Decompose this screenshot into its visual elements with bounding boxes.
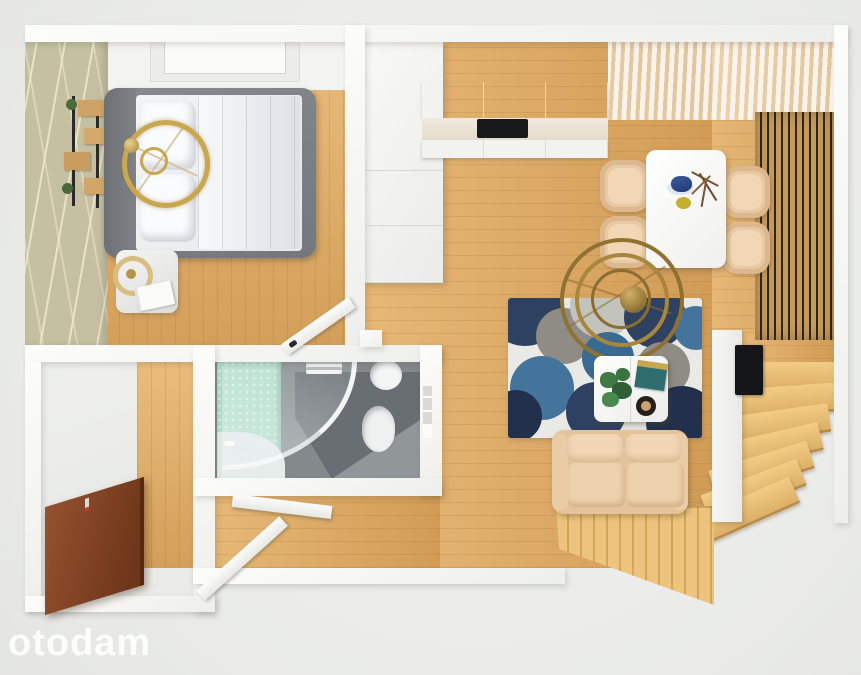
shelf-plant-icon [66, 99, 77, 110]
round-tray-center-icon [641, 401, 651, 411]
sofa-back-cushion-2 [625, 434, 681, 462]
sofa-seat-cushion-1 [568, 463, 625, 507]
table-lamp-center-icon [126, 269, 136, 279]
dining-chair-4 [722, 222, 770, 274]
sofa-back-cushion-1 [567, 434, 623, 462]
bedroom-chandelier-inner-ring-icon [140, 147, 168, 175]
shower-head-icon [306, 361, 342, 374]
sofa-armrest-left [552, 433, 568, 511]
left-outer-wall [25, 362, 41, 610]
dining-chair-3 [722, 166, 770, 218]
dining-chair-1 [600, 160, 650, 212]
entrance-door-handle-icon [85, 498, 89, 511]
shelf-box-3 [64, 152, 90, 170]
teal-book [634, 360, 667, 391]
corridor-bottom-wall [193, 568, 565, 584]
kitchen-tall-unit-seam-2 [363, 225, 443, 226]
monstera-plant-icon-4 [616, 368, 630, 381]
door-handle-icon [288, 339, 297, 348]
wood-slat-wall [755, 112, 835, 340]
blue-mug-icon [671, 176, 692, 192]
kitchen-tall-unit [363, 42, 443, 283]
kitchen-base-cabinets [422, 140, 608, 158]
sofa-seat-cushion-2 [627, 463, 684, 507]
shelf-box-1 [78, 100, 104, 116]
top-outer-wall [25, 25, 845, 42]
kitchen-upper-cabinets [422, 82, 608, 118]
cooktop-icon [477, 119, 528, 138]
hallway-floor [137, 362, 193, 568]
right-outer-wall [834, 25, 848, 523]
yellow-dish-icon [676, 197, 691, 209]
bed-duvet [198, 96, 300, 249]
tv-icon [735, 345, 763, 395]
bathroom-bottom-wall [193, 478, 442, 496]
toilet-icon [362, 406, 395, 452]
bathroom-radiator-icon [423, 386, 432, 438]
floor-plan-render: otodam [0, 0, 861, 675]
shelf-plant-icon-2 [62, 183, 73, 194]
mid-horizontal-wall [25, 345, 442, 362]
wall-stub [360, 330, 382, 347]
monstera-plant-icon-3 [602, 392, 619, 407]
shower-faucet-icon [224, 441, 235, 446]
bathroom-sink-icon [370, 360, 402, 390]
living-chandelier-disk-icon [620, 286, 647, 313]
kitchen-tall-unit-seam [363, 170, 443, 171]
bedroom-chandelier-bulb-icon [124, 138, 139, 153]
otodam-watermark-logo: otodam [8, 622, 151, 665]
